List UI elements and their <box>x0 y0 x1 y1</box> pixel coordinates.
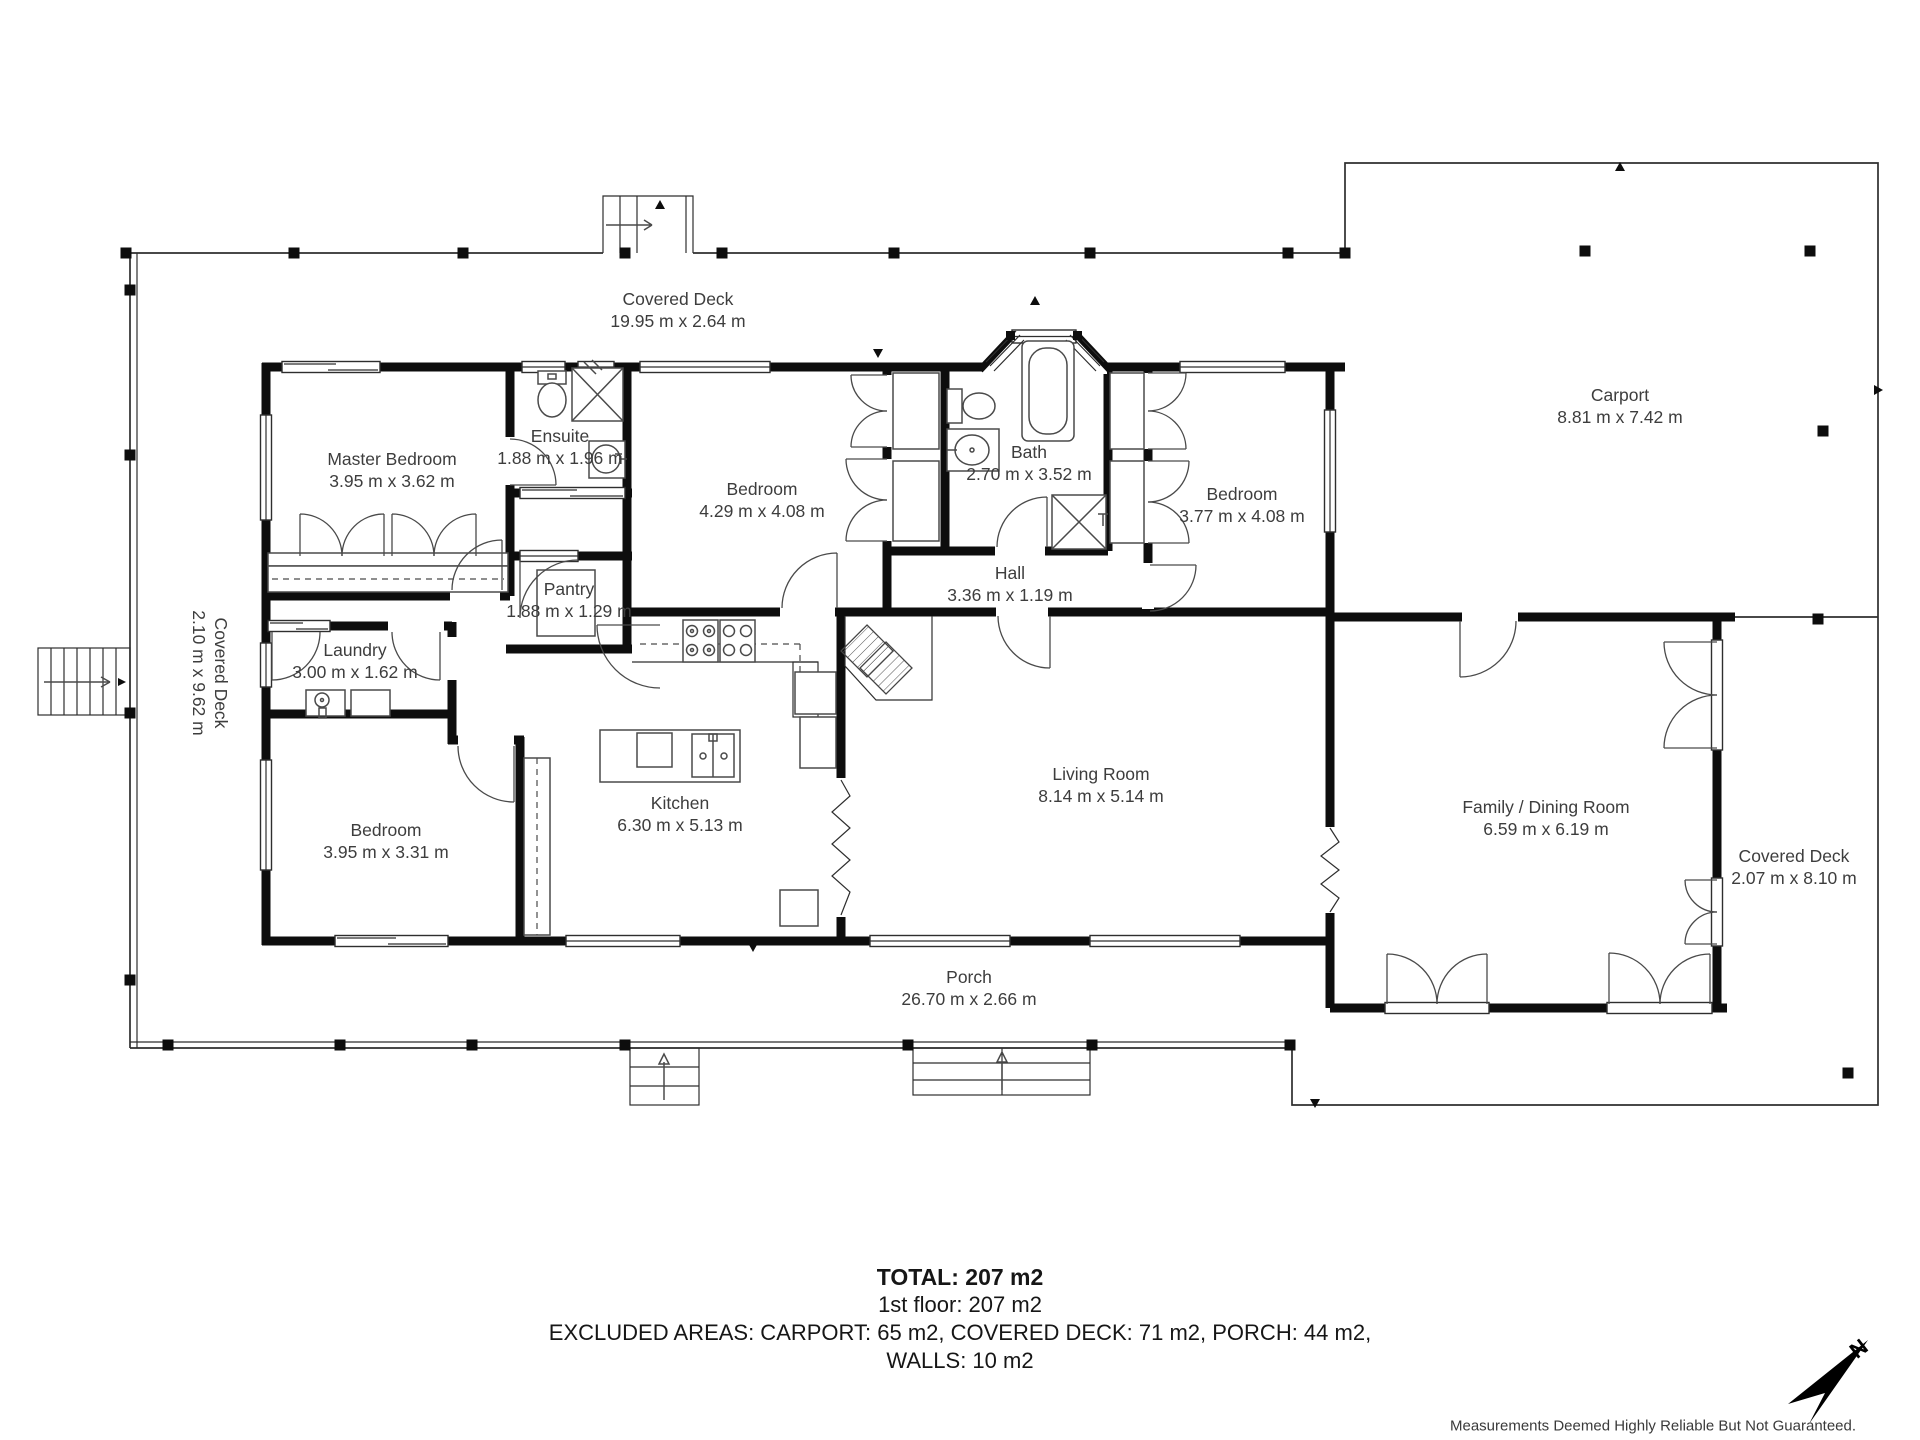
room-dimensions: 3.95 m x 3.31 m <box>323 841 448 863</box>
porch-steps-small <box>630 1048 699 1105</box>
ensuite-toilet <box>538 371 566 417</box>
excluded-areas: EXCLUDED AREAS: CARPORT: 65 m2, COVERED … <box>0 1319 1920 1347</box>
room-dimensions: 4.29 m x 4.08 m <box>699 500 824 522</box>
room-name: Bath <box>966 441 1091 463</box>
room-name: Ensuite <box>497 425 622 447</box>
room-dimensions: 3.00 m x 1.62 m <box>292 661 417 683</box>
room-label-covered-deck-right: Covered Deck2.07 m x 8.10 m <box>1731 845 1856 889</box>
staircase-top <box>603 196 693 253</box>
room-name: Living Room <box>1038 763 1163 785</box>
room-dimensions: 6.59 m x 6.19 m <box>1462 818 1629 840</box>
room-name: Family / Dining Room <box>1462 796 1629 818</box>
floorplan-drawing <box>0 0 1920 1440</box>
staircase-left <box>38 648 130 715</box>
room-dimensions: 8.14 m x 5.14 m <box>1038 785 1163 807</box>
bedroom-right-closet <box>1110 373 1144 543</box>
fireplace <box>841 616 932 700</box>
bedroom-mid-closet <box>893 373 939 541</box>
room-name: Master Bedroom <box>327 448 456 470</box>
room-name: Bedroom <box>699 478 824 500</box>
kitchen-table <box>780 890 818 926</box>
room-name: Bedroom <box>323 819 448 841</box>
total-area: TOTAL: 207 m2 <box>0 1263 1920 1291</box>
bath-toilet <box>947 389 995 423</box>
room-label-pantry: Pantry1.88 m x 1.29 m <box>506 578 631 622</box>
room-dimensions: 2.10 m x 9.62 m <box>188 610 210 735</box>
room-name: Carport <box>1557 384 1682 406</box>
bathtub <box>1022 341 1074 441</box>
room-name: Covered Deck <box>1731 845 1856 867</box>
room-label-living-room: Living Room8.14 m x 5.14 m <box>1038 763 1163 807</box>
room-dimensions: 6.30 m x 5.13 m <box>617 814 742 836</box>
room-dimensions: 1.88 m x 1.29 m <box>506 600 631 622</box>
deck-outlines <box>126 163 1878 1105</box>
room-name: Covered Deck <box>210 610 232 735</box>
walls-area: WALLS: 10 m2 <box>0 1347 1920 1375</box>
room-label-master-bedroom: Master Bedroom3.95 m x 3.62 m <box>327 448 456 492</box>
room-dimensions: 2.07 m x 8.10 m <box>1731 867 1856 889</box>
room-name: Hall <box>947 562 1072 584</box>
area-summary: TOTAL: 207 m2 1st floor: 207 m2 EXCLUDED… <box>0 1263 1920 1375</box>
room-label-kitchen: Kitchen6.30 m x 5.13 m <box>617 792 742 836</box>
laundry-sink <box>306 690 345 718</box>
room-label-bath: Bath2.70 m x 3.52 m <box>966 441 1091 485</box>
master-wardrobe <box>268 553 508 592</box>
room-dimensions: 3.95 m x 3.62 m <box>327 470 456 492</box>
disclaimer-text: Measurements Deemed Highly Reliable But … <box>1450 1418 1856 1435</box>
porch-steps-wide <box>913 1048 1090 1095</box>
room-name: Laundry <box>292 639 417 661</box>
room-dimensions: 26.70 m x 2.66 m <box>901 988 1036 1010</box>
room-label-laundry: Laundry3.00 m x 1.62 m <box>292 639 417 683</box>
floor-area: 1st floor: 207 m2 <box>0 1291 1920 1319</box>
room-label-bedroom-right: Bedroom3.77 m x 4.08 m <box>1179 483 1304 527</box>
room-dimensions: 3.36 m x 1.19 m <box>947 584 1072 606</box>
room-label-bedroom-middle: Bedroom4.29 m x 4.08 m <box>699 478 824 522</box>
kitchen-island <box>600 730 740 782</box>
room-label-porch: Porch26.70 m x 2.66 m <box>901 966 1036 1010</box>
room-dimensions: 1.88 m x 1.96 m <box>497 447 622 469</box>
room-label-family-dining-room: Family / Dining Room6.59 m x 6.19 m <box>1462 796 1629 840</box>
laundry-cabinet <box>351 690 390 716</box>
room-label-hall: Hall3.36 m x 1.19 m <box>947 562 1072 606</box>
ensuite-shower <box>572 360 623 421</box>
room-label-covered-deck-left: Covered Deck2.10 m x 9.62 m <box>188 610 232 735</box>
room-name: Porch <box>901 966 1036 988</box>
room-dimensions: 8.81 m x 7.42 m <box>1557 406 1682 428</box>
room-dimensions: 3.77 m x 4.08 m <box>1179 505 1304 527</box>
room-name: Kitchen <box>617 792 742 814</box>
room-name: Bedroom <box>1179 483 1304 505</box>
bath-shower <box>1052 495 1108 549</box>
room-name: Pantry <box>506 578 631 600</box>
room-name: Covered Deck <box>610 288 745 310</box>
room-dimensions: 19.95 m x 2.64 m <box>610 310 745 332</box>
room-label-carport: Carport8.81 m x 7.42 m <box>1557 384 1682 428</box>
room-dimensions: 2.70 m x 3.52 m <box>966 463 1091 485</box>
room-label-ensuite: Ensuite1.88 m x 1.96 m <box>497 425 622 469</box>
room-label-bedroom-left: Bedroom3.95 m x 3.31 m <box>323 819 448 863</box>
room-label-covered-deck-top: Covered Deck19.95 m x 2.64 m <box>610 288 745 332</box>
